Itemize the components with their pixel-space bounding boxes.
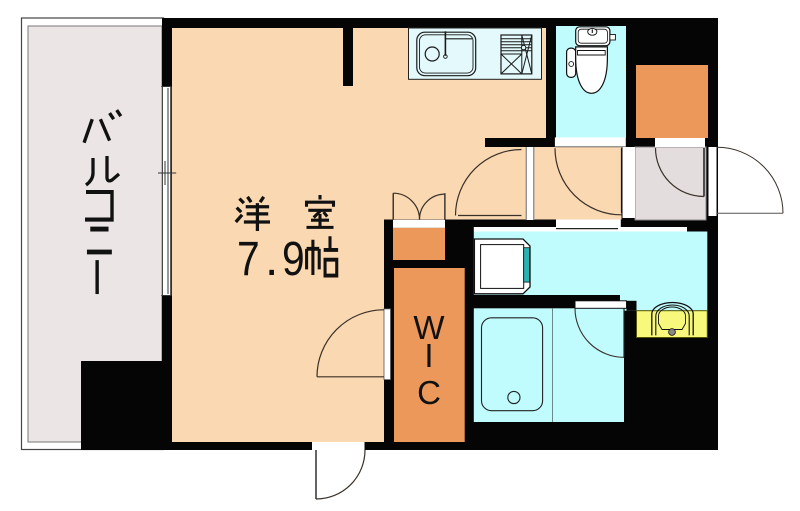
svg-text:C: C (417, 374, 441, 411)
svg-text:.: . (265, 233, 278, 286)
svg-text:I: I (424, 337, 433, 374)
svg-text:7: 7 (237, 233, 260, 286)
svg-text:9: 9 (282, 233, 305, 286)
